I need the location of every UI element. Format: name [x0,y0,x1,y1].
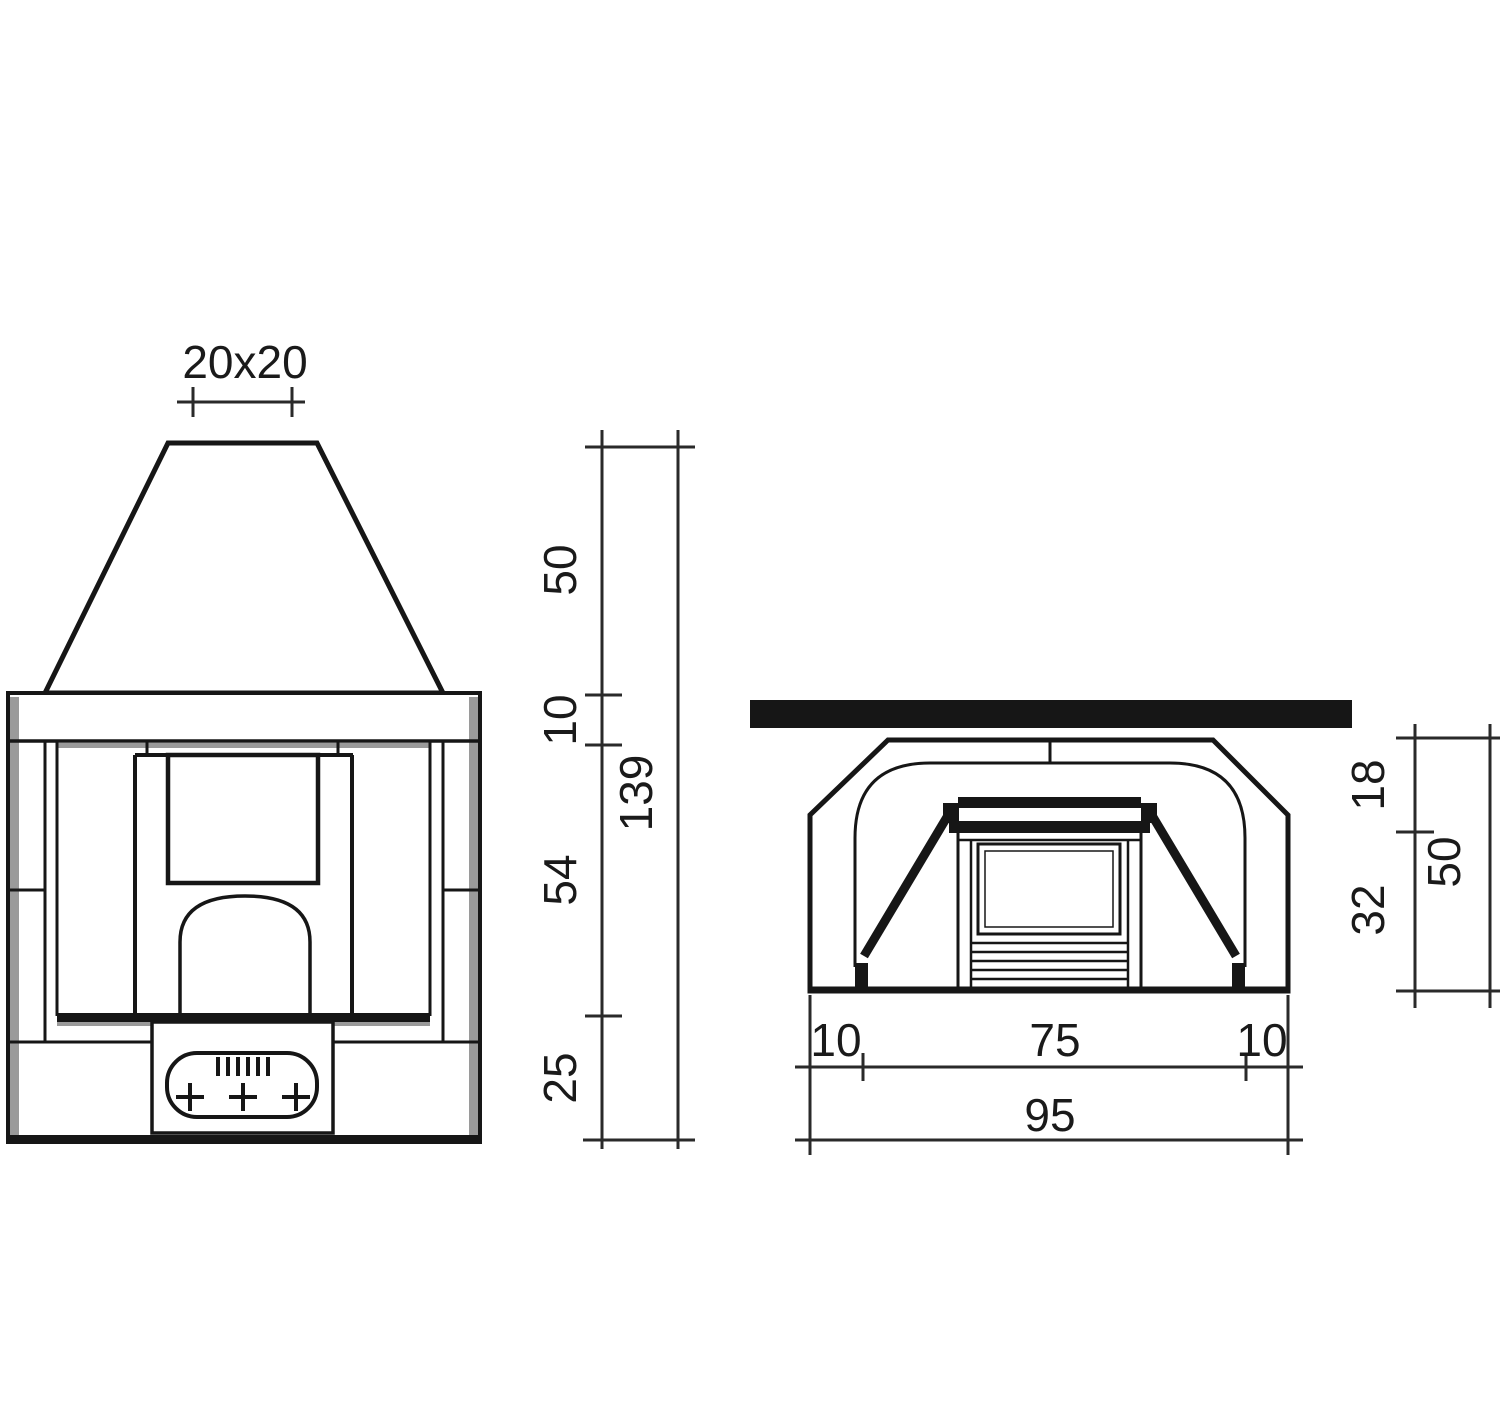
front-view-height-dimensions: 50 10 54 25 139 [534,430,695,1149]
drawing-sheet: 20x20 [0,0,1500,1427]
firebox-arch [180,896,310,1013]
plan-view-depth-dimensions: 18 32 50 [1342,724,1500,1008]
plan-view-width-dimensions: 10 75 10 95 [795,995,1303,1155]
total-depth-label: 50 [1418,836,1470,887]
total-height-label: 139 [610,755,662,832]
base-height-label: 25 [534,1052,586,1103]
opening-width-label: 75 [1029,1014,1080,1066]
glass-door-outer [978,844,1120,934]
right-shade [469,697,478,1135]
flue-size-label: 20x20 [182,336,307,388]
chimney-hood [45,443,443,693]
flue-dimension: 20x20 [177,336,308,417]
wall-bar [750,700,1352,728]
base-bar [8,1135,480,1143]
right-foot [1232,963,1245,990]
plan-view [750,700,1352,991]
insert-front-bar [949,821,1150,833]
damper-panel [168,755,318,883]
total-width-label: 95 [1024,1089,1075,1141]
fireplace-dimension-drawing: 20x20 [0,0,1500,1427]
left-foot [855,963,868,990]
front-depth-label: 18 [1342,759,1394,810]
front-view: 20x20 [8,336,480,1143]
left-shade [10,697,19,1135]
insert-back-bar [958,797,1141,808]
opening-height-label: 54 [534,854,586,905]
left-wall-width-label: 10 [810,1014,861,1066]
lintel-shadow [57,743,430,748]
hood-height-label: 50 [534,544,586,595]
right-wall-width-label: 10 [1236,1014,1287,1066]
back-depth-label: 32 [1342,884,1394,935]
lintel-height-label: 10 [534,694,586,745]
